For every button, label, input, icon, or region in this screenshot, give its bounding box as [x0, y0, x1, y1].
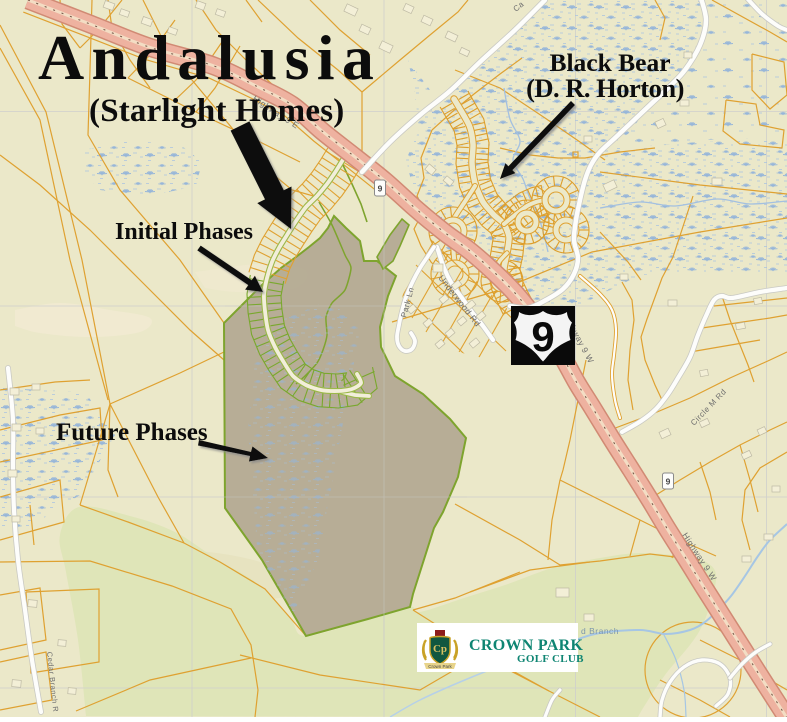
svg-text:(Starlight Homes): (Starlight Homes) [89, 93, 344, 129]
svg-text:Cp: Cp [433, 643, 447, 655]
svg-text:GOLF CLUB: GOLF CLUB [517, 653, 584, 665]
svg-text:9: 9 [378, 184, 383, 194]
svg-text:Initial Phases: Initial Phases [115, 219, 253, 245]
svg-text:9: 9 [531, 313, 554, 360]
svg-text:Future Phases: Future Phases [56, 419, 208, 446]
svg-text:Crown Park: Crown Park [428, 664, 452, 669]
svg-text:(D. R. Horton): (D. R. Horton) [526, 73, 684, 103]
svg-text:9: 9 [666, 477, 671, 487]
svg-text:d Branch: d Branch [581, 626, 619, 636]
svg-text:Andalusia: Andalusia [38, 22, 381, 93]
svg-text:CROWN PARK: CROWN PARK [469, 637, 584, 654]
